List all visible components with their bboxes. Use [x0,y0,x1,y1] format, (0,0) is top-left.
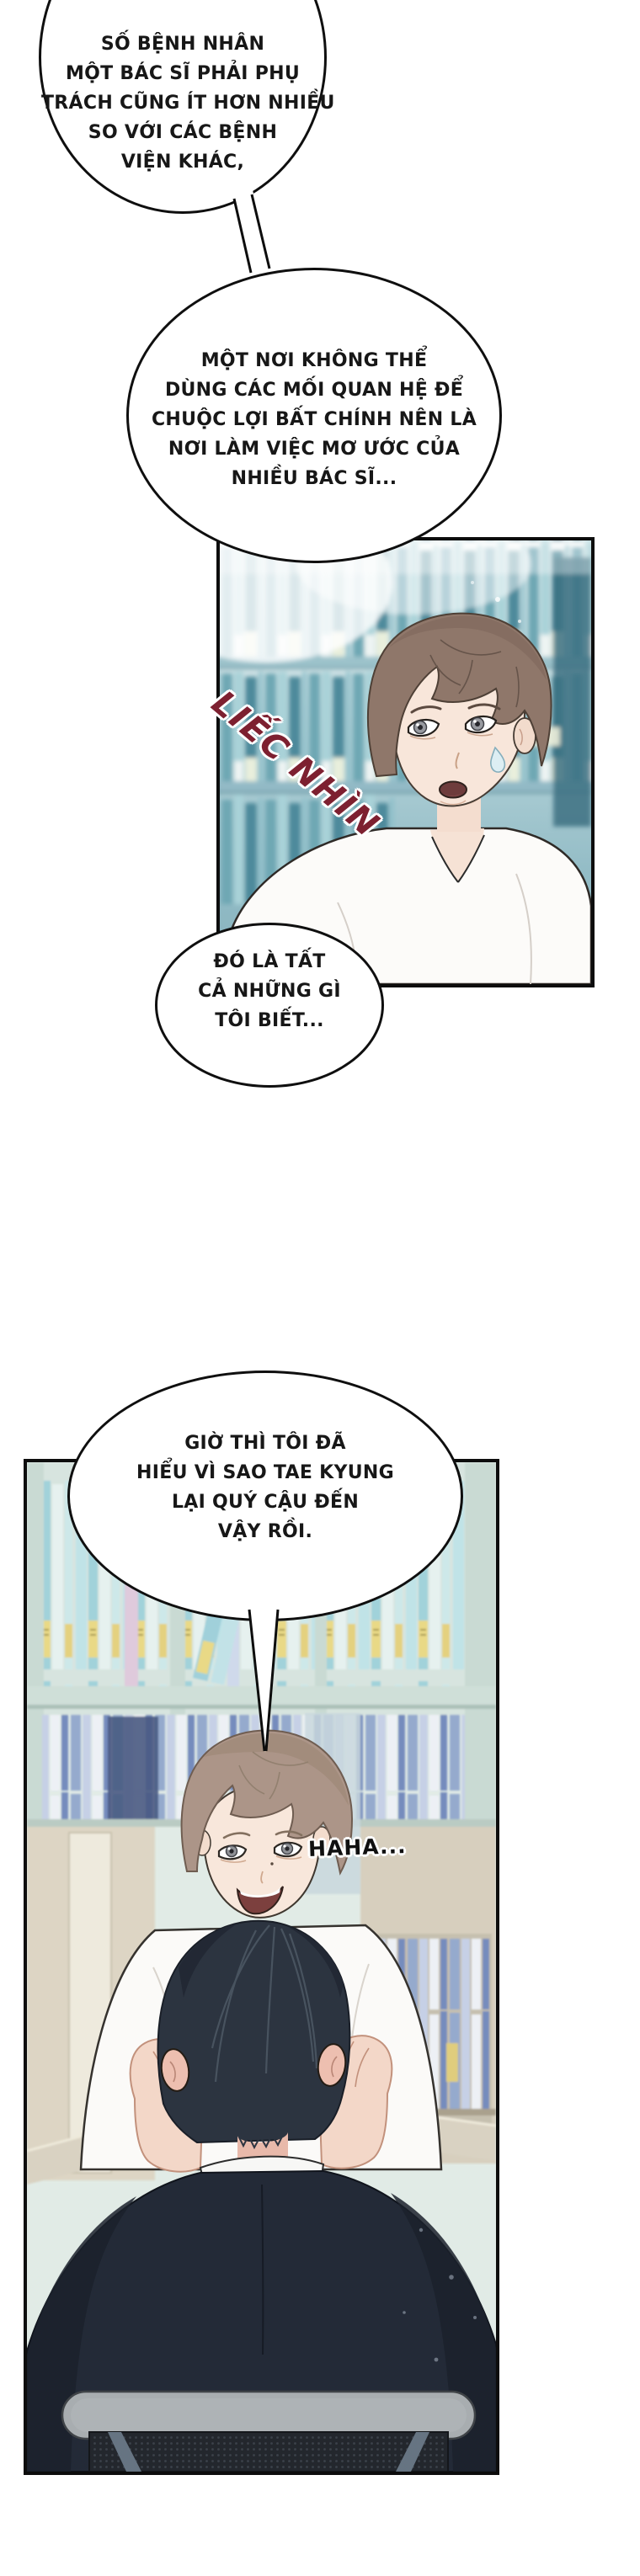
sparkle [471,581,474,584]
bubble-line: VẬY RỒI. [70,1517,461,1546]
office-chair [62,2392,475,2472]
book-label [446,2043,458,2082]
bubble-1-text: SỐ BỆNH NHÂN MỘT BÁC SĨ PHẢI PHỤ TRÁCH C… [41,29,324,177]
sparkle [518,620,521,623]
bubble-line: GIỜ THÌ TÔI ĐÃ [70,1429,461,1458]
shelf-edge [220,791,591,794]
shelf-divider [465,1462,496,1824]
bubble-3-text: ĐÓ LÀ TẤT CẢ NHỮNG GÌ TÔI BIẾT... [157,947,381,1035]
bubble-line: ĐÓ LÀ TẤT [157,947,381,977]
beauty-mark [270,1862,273,1865]
bubble-line: NHIỀU BÁC SĨ... [129,464,499,493]
bubble-4-text: GIỜ THÌ TÔI ĐÃ HIỂU VÌ SAO TAE KYUNG LẠI… [70,1429,461,1546]
open-mouth [440,782,467,798]
comic-page: LIẾC NHÌN HAHA... SỐ BỆNH NHÂN MỘT BÁC S… [0,0,640,2576]
connector-fill [232,190,271,274]
bubble-line: SO VỚI CÁC BỆNH [41,118,324,147]
chair-mesh-back [89,2432,448,2472]
shelf-board [220,781,591,793]
dark-books-column [553,557,591,827]
bubble-connector [224,187,276,276]
sparkle [495,597,500,602]
bubble-line: CẢ NHỮNG GÌ [157,977,381,1006]
speech-bubble-4: GIỜ THÌ TÔI ĐÃ HIỂU VÌ SAO TAE KYUNG LẠI… [67,1370,463,1621]
chair-top-highlight [71,2398,467,2432]
bubble-line: MỘT NƠI KHÔNG THỂ [129,346,499,375]
bubble-line: MỘT BÁC SĨ PHẢI PHỤ [41,59,324,88]
dark-books [108,1716,158,1823]
bubble-line: TRÁCH CŨNG ÍT HƠN NHIỀU [41,88,324,118]
tail-fill [249,1610,278,1753]
bubble-line: DÙNG CÁC MỐI QUAN HỆ ĐỂ [129,375,499,405]
speech-bubble-1: SỐ BỆNH NHÂN MỘT BÁC SĨ PHẢI PHỤ TRÁCH C… [39,0,327,214]
speech-bubble-3: ĐÓ LÀ TẤT CẢ NHỮNG GÌ TÔI BIẾT... [155,923,384,1088]
laugh-text: HAHA... [308,1834,407,1861]
speech-bubble-2: MỘT NƠI KHÔNG THỂ DÙNG CÁC MỐI QUAN HỆ Đ… [126,268,502,563]
bubble-line: NƠI LÀM VIỆC MƠ ƯỚC CỦA [129,434,499,464]
bubble-4-tail [237,1610,288,1757]
bubble-line: TÔI BIẾT... [157,1006,381,1035]
bubble-line: VIỆN KHÁC, [41,147,324,177]
bubble-line: HIỂU VÌ SAO TAE KYUNG [70,1458,461,1488]
shelf-divider [27,1462,44,1833]
bubble-2-text: MỘT NƠI KHÔNG THỂ DÙNG CÁC MỐI QUAN HỆ Đ… [129,346,499,493]
bubble-line: CHUỘC LỢI BẤT CHÍNH NÊN LÀ [129,405,499,434]
bubble-line: LẠI QUÝ CẬU ĐẾN [70,1488,461,1517]
bubble-line: SỐ BỆNH NHÂN [41,29,324,59]
